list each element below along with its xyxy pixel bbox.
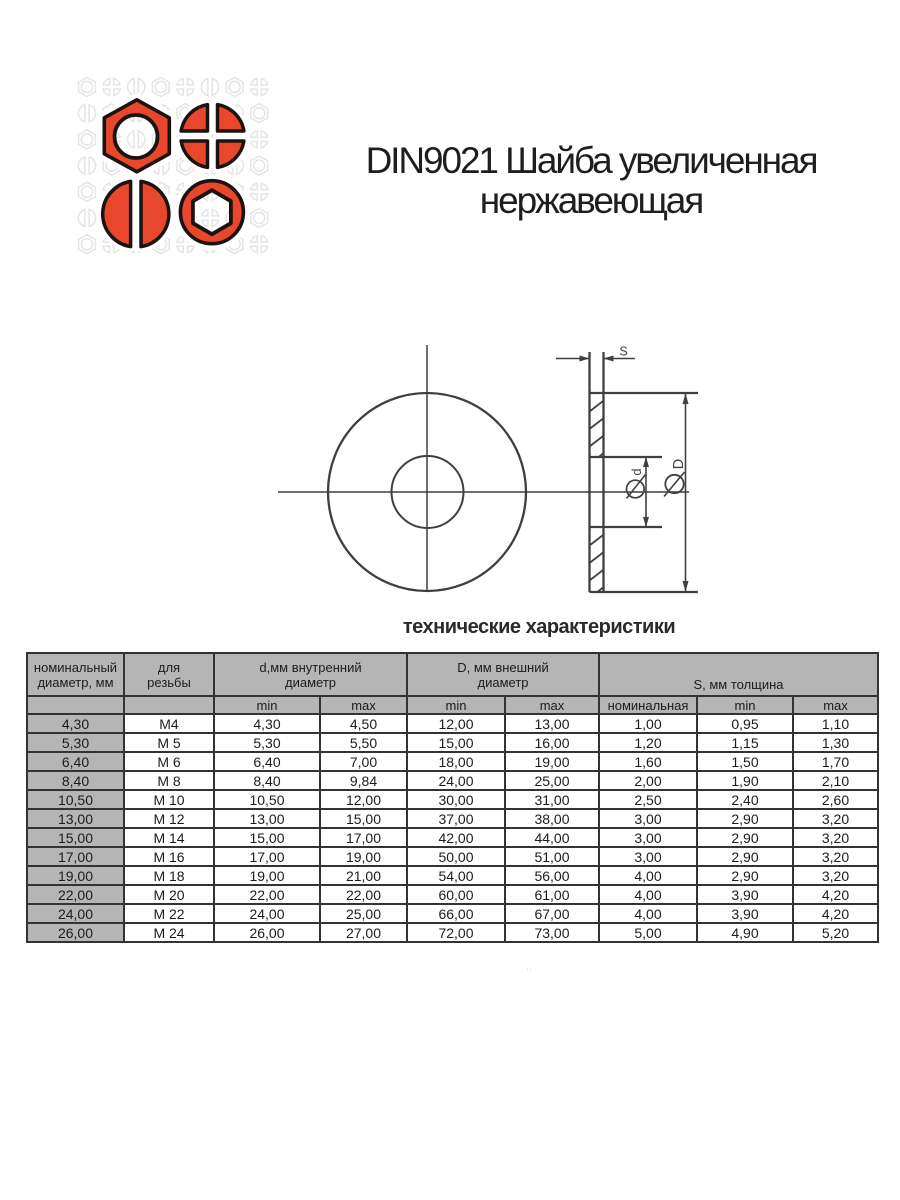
svg-text:S: S <box>619 345 627 359</box>
svg-text:d: d <box>630 468 644 475</box>
svg-text:D: D <box>671 459 687 469</box>
